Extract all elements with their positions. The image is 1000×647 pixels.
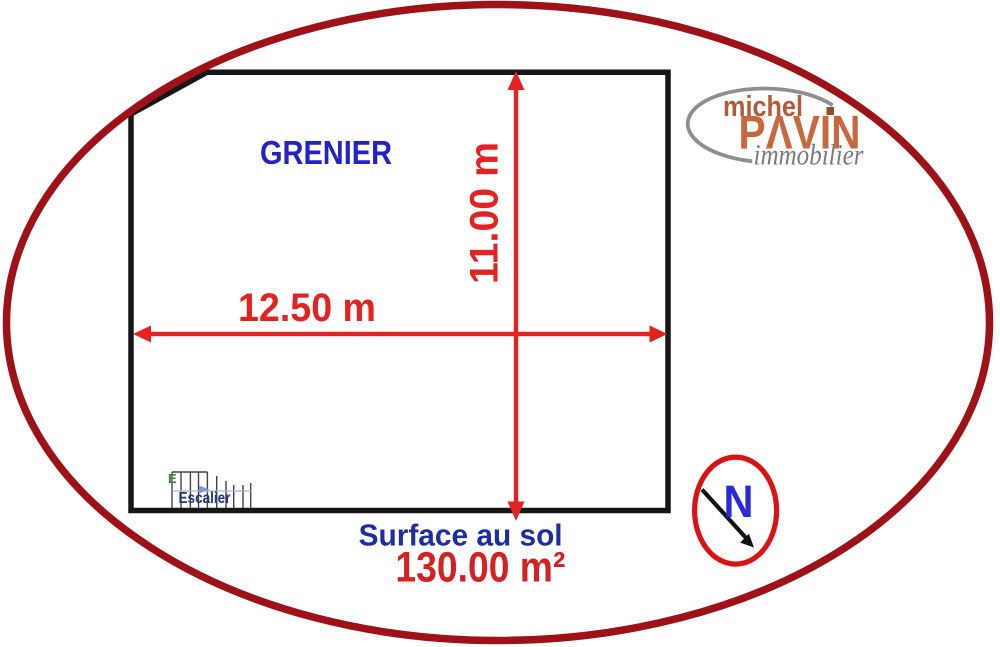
svg-text:Escalier: Escalier (179, 490, 231, 507)
svg-text:130.00 m²: 130.00 m² (395, 545, 565, 592)
svg-text:E: E (168, 471, 177, 486)
svg-text:12.50 m: 12.50 m (238, 286, 376, 330)
svg-text:11.00 m: 11.00 m (463, 142, 507, 284)
svg-text:immobilier: immobilier (754, 139, 864, 172)
svg-text:N: N (724, 476, 754, 527)
svg-text:GRENIER: GRENIER (260, 134, 392, 171)
